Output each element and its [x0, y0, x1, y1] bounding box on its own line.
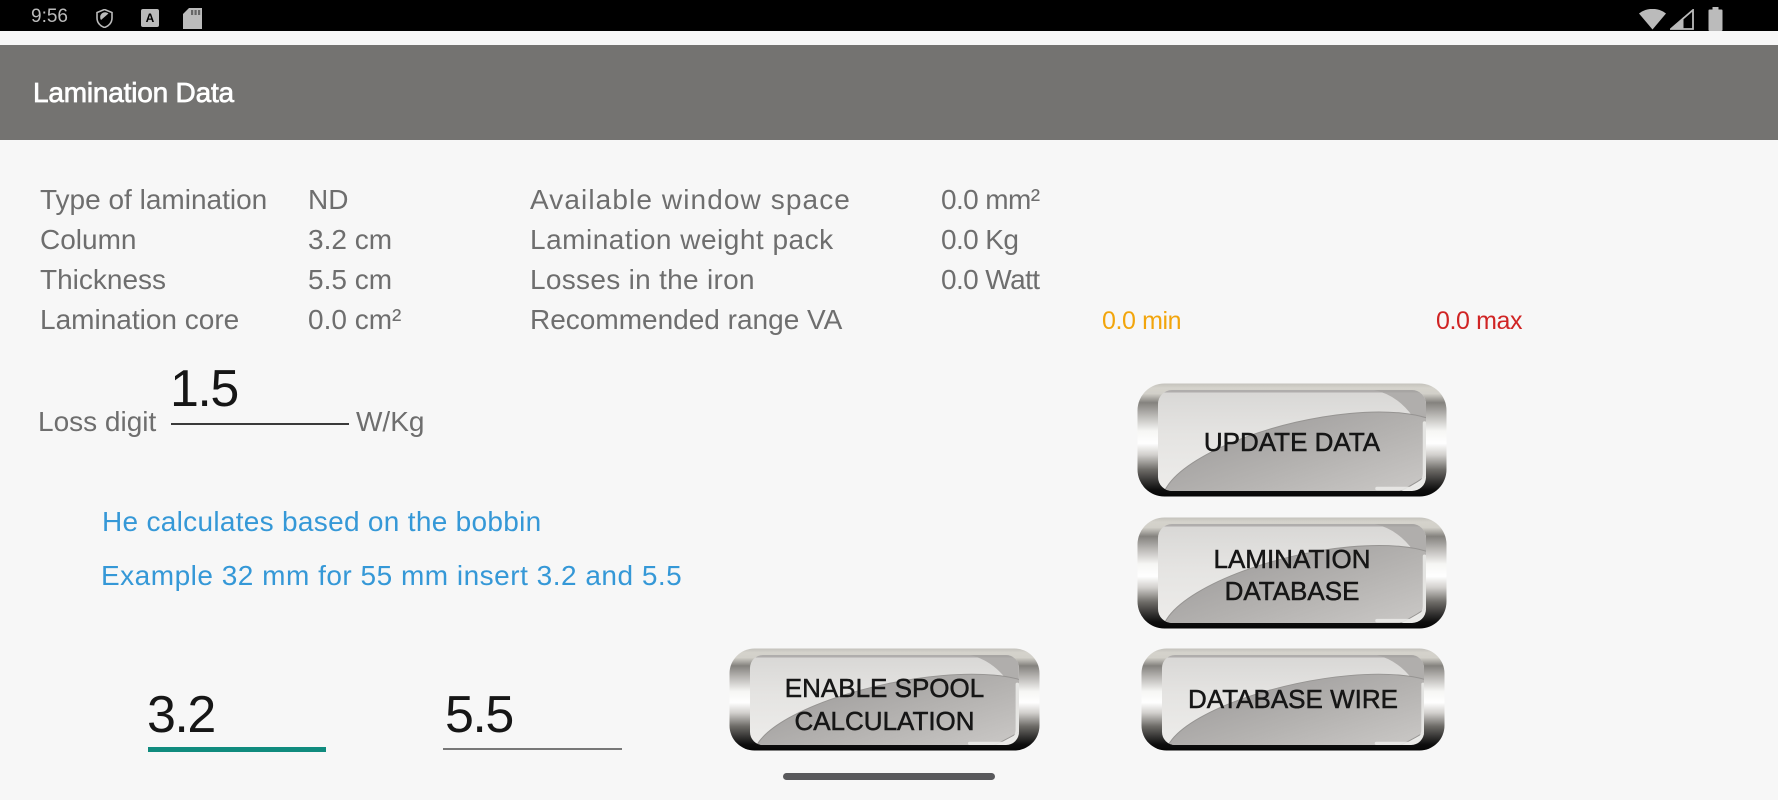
svg-text:A: A: [146, 11, 155, 25]
